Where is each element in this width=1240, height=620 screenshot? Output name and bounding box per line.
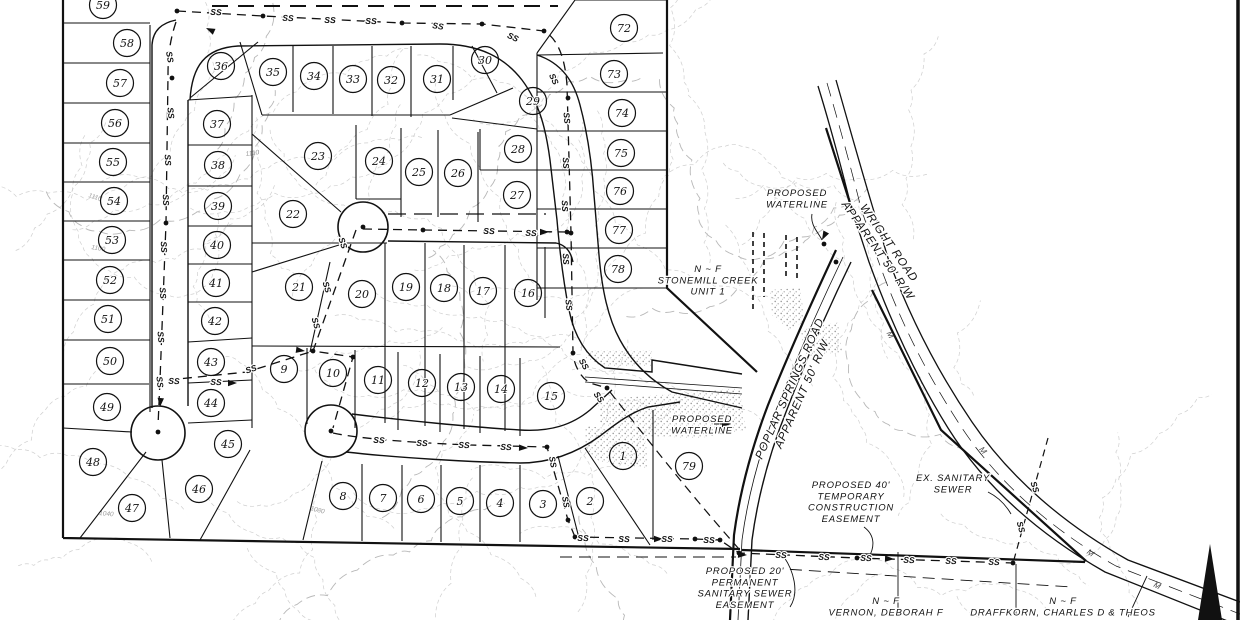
lot-marker: 21 [286,274,313,301]
lot-number: 48 [85,456,100,469]
lot-number: 4 [496,497,504,510]
lot-number: 57 [113,77,127,90]
lot-lines-mid-block [252,243,560,436]
ss-label: SS [500,442,512,452]
contour-line [292,105,401,301]
lot-number: 26 [450,167,465,180]
lot-marker: 41 [203,270,230,297]
ss-label: SS [156,331,167,343]
lot-number: 7 [380,492,387,505]
lot-number: 74 [615,107,629,120]
plat-drawing: 11101110110010401080 [0,0,1240,620]
lot-marker: 35 [260,59,287,86]
annotation-line: SEWER [934,484,973,495]
lot-marker: 57 [107,70,134,97]
lot-number: 78 [611,263,625,276]
ss-label: SS [775,550,787,560]
lot-number: 22 [285,208,300,221]
contour-line [193,185,274,325]
annotation-line: PROPOSED 20' [706,566,785,577]
ss-label: SS [1015,520,1028,534]
manhole-dot [822,242,827,247]
lot-marker: 48 [80,449,107,476]
ss-label: SS [321,280,334,294]
annotation-line: EASEMENT [822,514,881,525]
annotation-wright-road: WRIGHT ROADAPPARENT 50' R/W [838,191,927,303]
lot-number: 56 [108,117,122,130]
manhole-dot [311,349,316,354]
contour-line [278,503,505,620]
contour-line [833,274,904,497]
manhole-dot [565,230,570,235]
ss-label: SS [159,241,170,253]
lot-number: 25 [411,166,426,179]
contour-line [247,548,317,620]
lot-marker: 75 [608,140,635,167]
lot-marker: 12 [409,370,436,397]
ss-label: SS [561,157,572,169]
ss-label: SS [432,20,445,32]
ss-label: SS [661,534,673,544]
utility-m-markers: MMMM [885,330,1163,592]
ss-label: SS [336,236,349,250]
lot-marker: 52 [97,267,124,294]
ss-label: SS [560,200,570,212]
lot-number: 17 [476,285,490,298]
lot-number: 15 [544,390,558,403]
ss-label: SS [310,316,323,330]
wright-road-edge [818,86,1240,620]
lot-number: 75 [614,147,628,160]
manhole-dot [855,556,860,561]
lot-marker: 53 [99,227,126,254]
flow-arrow [738,551,747,558]
lot-number: 5 [457,495,464,508]
lot-number: 50 [103,355,117,368]
contour-elevation-label: 1110 [245,149,260,158]
lot-marker: 45 [215,431,242,458]
lot-marker: 74 [609,100,636,127]
manhole-dot [566,96,571,101]
ss-label: SS [560,496,572,509]
lot-marker: 73 [601,61,628,88]
lot-marker: 22 [280,201,307,228]
lot-number: 52 [103,274,117,287]
lot-number: 39 [211,200,225,213]
lot-number: 42 [207,315,222,328]
lot-marker: 79 [676,453,703,480]
lot-number: 46 [191,483,206,496]
ss-label: SS [562,112,573,124]
flow-arrow [296,347,306,355]
contour-line [941,514,1089,586]
roads [131,6,1240,620]
ss-label: SS [365,16,377,26]
manhole-dot [718,538,723,543]
lot-number: 20 [354,288,369,301]
lot-number: 45 [220,438,235,451]
ss-label: SS [154,376,165,389]
lot-marker: 19 [393,274,420,301]
ss-label: SS [618,534,630,544]
lot-number: 30 [478,54,492,67]
m-marker: M [977,445,988,456]
lot-marker: 47 [119,495,146,522]
annotation-ex-sewer: EX. SANITARYSEWER [916,473,990,495]
lot-number: 13 [454,381,468,394]
plat-svg: 11101110110010401080 [0,0,1240,620]
manhole-dot [605,386,610,391]
ss-label: SS [168,376,180,386]
contour-line [846,282,961,448]
lot-marker: 23 [305,143,332,170]
ss-label: SS [165,107,176,120]
manhole-dot [164,221,169,226]
lot-number: 72 [617,22,631,35]
m-marker: M [885,330,896,340]
annotation-perm-easement: PROPOSED 20'PERMANENTSANITARY SEWEREASEM… [698,566,793,611]
manhole-dot [571,351,576,356]
lot-marker: 42 [202,308,229,335]
contour-line [520,526,667,573]
sewer-diagonal [313,230,356,428]
lot-number: 11 [371,374,385,387]
manhole-dot [170,76,175,81]
annotation-line: EASEMENT [716,600,775,611]
contour-elevation-labels: 11101110110010401080 [87,149,325,518]
lot-number: 35 [266,66,280,79]
annotation-waterline-upper: PROPOSEDWATERLINE [766,188,828,210]
annotation-line: N ~ F [872,596,900,607]
manhole-dot [329,429,334,434]
lot-marker: 38 [205,152,232,179]
lot-marker: 2 [577,488,604,515]
wright-road-centerline [827,83,1240,614]
annotation-line: SANITARY SEWER [698,589,793,600]
ss-label: SS [547,72,561,87]
lot-number: 36 [214,60,228,73]
contour-elevation-label: 1080 [309,505,325,516]
ss-label: SS [903,555,915,565]
ss-label: SS [577,533,589,543]
lot-marker: 78 [605,256,632,283]
lot-marker: 32 [378,67,405,94]
flow-arrow [519,444,528,451]
lot-marker: 13 [448,374,475,401]
lot-marker: 33 [340,66,367,93]
manhole-dot [1011,561,1016,566]
lot-marker: 76 [607,178,634,205]
lot-number: 47 [124,502,139,515]
lot-marker: 77 [606,217,633,244]
lot-marker: 46 [186,476,213,503]
ss-label: SS [158,287,169,299]
contour-line [334,315,577,349]
contour-line [626,208,855,318]
ss-label: SS [282,13,294,23]
lot-marker: 49 [94,394,121,421]
lot-number: 9 [281,363,288,376]
contour-line [1099,394,1212,611]
annotation-line: WATERLINE [766,199,828,210]
lot-number: 10 [326,367,340,380]
contour-line [208,497,344,620]
annotation-line: WATERLINE [671,425,733,436]
lot-marker: 54 [101,188,128,215]
lot-number: 24 [371,155,386,168]
lot-marker: 10 [320,360,347,387]
manhole-dot [542,29,547,34]
annotation-line: DRAFFKORN, CHARLES D & THEOS [970,607,1156,618]
lot-number: 23 [310,150,325,163]
manhole-dot [361,225,366,230]
ss-label: SS [547,456,559,469]
lot-number: 40 [209,239,224,252]
manhole-dot [175,9,180,14]
contour-line [473,0,714,125]
manhole-dot [480,22,485,27]
contour-line [435,414,536,597]
ss-label: SS [945,556,957,566]
contour-line [315,49,403,187]
ss-label: SS [210,377,222,387]
annotation-line: CONSTRUCTION [808,503,894,514]
lot-number: 41 [208,277,223,290]
ss-label: SS [324,15,336,25]
lot-marker: 8 [330,483,357,510]
lot-marker: 26 [445,160,472,187]
lot-number: 44 [203,397,218,410]
annotation-line: UNIT 1 [691,287,726,298]
contour-lines [0,0,1212,620]
ss-label: SS [373,435,385,446]
m-marker: M [1152,580,1162,591]
lot-marker: 15 [538,383,565,410]
manhole-dot [693,537,698,542]
ss-label: SS [506,30,521,44]
annotation-line: PROPOSED [767,188,827,199]
annotation-line: VERNON, DEBORAH F [829,607,944,618]
ss-label: SS [818,552,830,562]
lot-marker: 34 [301,63,328,90]
lot-number: 37 [210,118,224,131]
lot-marker: 25 [406,159,433,186]
annotation-line: N ~ F [1049,596,1077,607]
ss-label: SS [988,557,1000,567]
lot-marker: 9 [271,356,298,383]
manhole-dot [156,430,161,435]
lot-marker: 5 [447,488,474,515]
lot-number: 18 [437,282,451,295]
lot-number: 49 [99,401,114,414]
lot-number: 32 [384,74,398,87]
lot-marker: 18 [431,275,458,302]
ss-label: SS [416,438,428,448]
lot-marker: 36 [208,53,235,80]
manhole-dot [421,228,426,233]
ss-label: SS [561,253,572,265]
lot-marker: 6 [408,486,435,513]
lot-marker: 40 [204,232,231,259]
manhole-dot [834,260,839,265]
lot-number: 28 [510,143,525,156]
lot-marker: 59 [90,0,117,19]
flow-arrow [885,555,894,562]
lot-number: 53 [105,234,119,247]
lot-number: 59 [96,0,110,12]
annotation-line: POPLAR SPRINGS ROAD [754,316,827,461]
annotation-line: N ~ F [694,264,722,275]
contour-elevation-label: 1100 [91,244,106,253]
contour-line [70,135,219,297]
lot-number: 73 [607,68,621,81]
lot-marker: 20 [349,281,376,308]
lot-number: 6 [418,493,425,506]
contour-line [17,538,151,566]
lot-number: 3 [540,498,547,511]
stipple-patch [586,350,652,366]
annotation-waterline-lower: PROPOSEDWATERLINE [671,414,733,436]
flow-arrow [819,231,829,242]
annotation-line: APPARENT 50' R/W [838,198,916,302]
manhole-dot [545,445,550,450]
contour-line [375,292,613,371]
north-arrow-wedge [1198,544,1222,620]
ss-label: SS [458,440,470,450]
annotation-line: TEMPORARY [817,491,884,502]
ss-label: SS [163,154,174,166]
lot-marker: 50 [97,348,124,375]
contour-line [659,79,866,260]
lot-number: 79 [682,460,696,473]
manhole-dot [351,355,356,360]
lot-number: 51 [101,313,115,326]
lot-marker: 72 [611,15,638,42]
contour-line [954,300,981,395]
annotation-temp-easement: PROPOSED 40'TEMPORARYCONSTRUCTIONEASEMEN… [808,480,894,525]
lot-marker: 4 [487,490,514,517]
lot-number: 77 [612,224,626,237]
contour-line [579,516,632,620]
ss-label: SS [244,362,258,375]
lot-marker: 3 [530,491,557,518]
contour-line [670,0,711,263]
manhole-dot [566,518,571,523]
lot-marker: 55 [100,149,127,176]
lot-number: 16 [521,287,535,300]
lot-number: 34 [307,70,321,83]
lot-marker: 11 [365,367,392,394]
ss-label: SS [563,299,574,312]
lot-number: 1 [620,450,627,463]
lot-lines-east-column [537,0,667,300]
lot-number: 38 [211,159,225,172]
manhole-dot [261,14,266,19]
lot-number: 29 [525,95,540,108]
lot-number: 2 [586,495,594,508]
lot-number: 43 [203,356,218,369]
annotation-line: PERMANENT [712,577,779,588]
ss-label: SS [1028,480,1041,494]
lot-marker: 27 [504,182,531,209]
lot-number: 14 [494,383,508,396]
lot-marker: 58 [114,30,141,57]
lot-number: 31 [430,73,444,86]
ss-label: SS [525,228,537,238]
annotation-line: PROPOSED [672,414,732,425]
contour-line [46,90,275,234]
lot-marker: 31 [424,66,451,93]
contour-line [902,36,938,239]
lot-marker: 14 [488,376,515,403]
lot-number: 55 [106,156,120,169]
ss-label: SS [164,51,176,64]
annotation-vernon: N ~ FVERNON, DEBORAH F [829,596,944,618]
lot-number: 54 [107,195,121,208]
lot-marker: 28 [505,136,532,163]
sewer-lower-street [333,433,575,537]
lot-number: 76 [613,185,627,198]
manhole-dot [400,21,405,26]
ss-label: SS [703,535,715,545]
annotation-line: EX. SANITARY [916,473,990,484]
ss-label: SS [210,7,222,18]
lot-number: 21 [291,281,306,294]
ss-label: SS [483,226,495,236]
lot-number: 58 [120,37,134,50]
contour-line [229,494,318,620]
lot-number: 27 [509,189,524,202]
lot-number: 19 [399,281,413,294]
ss-label: SS [860,553,872,563]
lot-marker: 43 [198,349,225,376]
flow-arrow [205,25,216,35]
annotation-line: STONEMILL CREEK [658,275,759,286]
annotation-line: PROPOSED 40' [812,480,891,491]
manhole-dot [569,231,574,236]
lot-marker: 24 [366,148,393,175]
lot-marker: 37 [204,111,231,138]
lot-number: 33 [346,73,360,86]
ss-label: SS [161,194,172,206]
lot-number: 12 [415,377,429,390]
annotation-draffkorn: N ~ FDRAFFKORN, CHARLES D & THEOS [970,596,1156,618]
lot-marker: 7 [370,485,397,512]
stipple-patch [770,288,805,330]
lot-marker: 51 [95,306,122,333]
lot-marker: 44 [198,390,225,417]
m-marker: M [1085,547,1096,558]
lot-number: 8 [340,490,347,503]
